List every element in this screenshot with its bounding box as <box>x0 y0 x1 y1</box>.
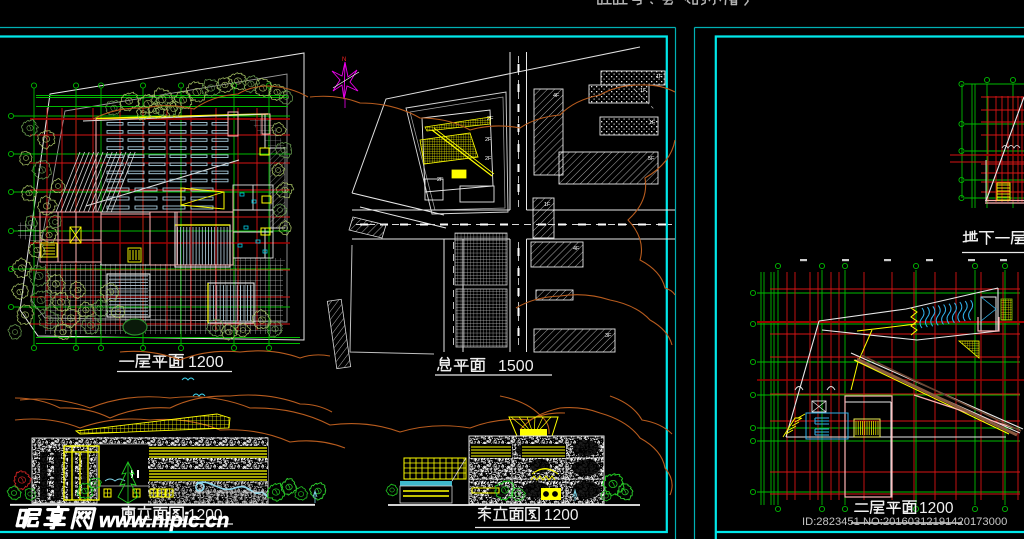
svg-text:1200: 1200 <box>188 354 224 371</box>
svg-text:4F: 4F <box>553 93 560 99</box>
svg-text:4F: 4F <box>573 246 580 252</box>
svg-text:ID:2823451 NO:2016031219142017: ID:2823451 NO:20160312191420173000 <box>802 516 1007 528</box>
svg-text:2F: 2F <box>487 116 494 122</box>
svg-text:1F: 1F <box>640 88 647 94</box>
svg-text:1500: 1500 <box>498 358 534 375</box>
svg-text:5F: 5F <box>648 156 655 162</box>
svg-text:2F: 2F <box>437 177 444 183</box>
svg-text:1F: 1F <box>656 74 663 80</box>
svg-text:1200: 1200 <box>919 500 954 517</box>
svg-text:1F: 1F <box>649 120 656 126</box>
svg-text:www.nipic.cn: www.nipic.cn <box>99 509 229 532</box>
svg-text:1200: 1200 <box>544 507 579 524</box>
svg-text:N: N <box>342 57 346 63</box>
svg-text:3F: 3F <box>605 333 612 339</box>
svg-text:2F: 2F <box>485 156 492 162</box>
svg-text:2F: 2F <box>485 137 492 143</box>
svg-text:1F: 1F <box>544 202 551 208</box>
